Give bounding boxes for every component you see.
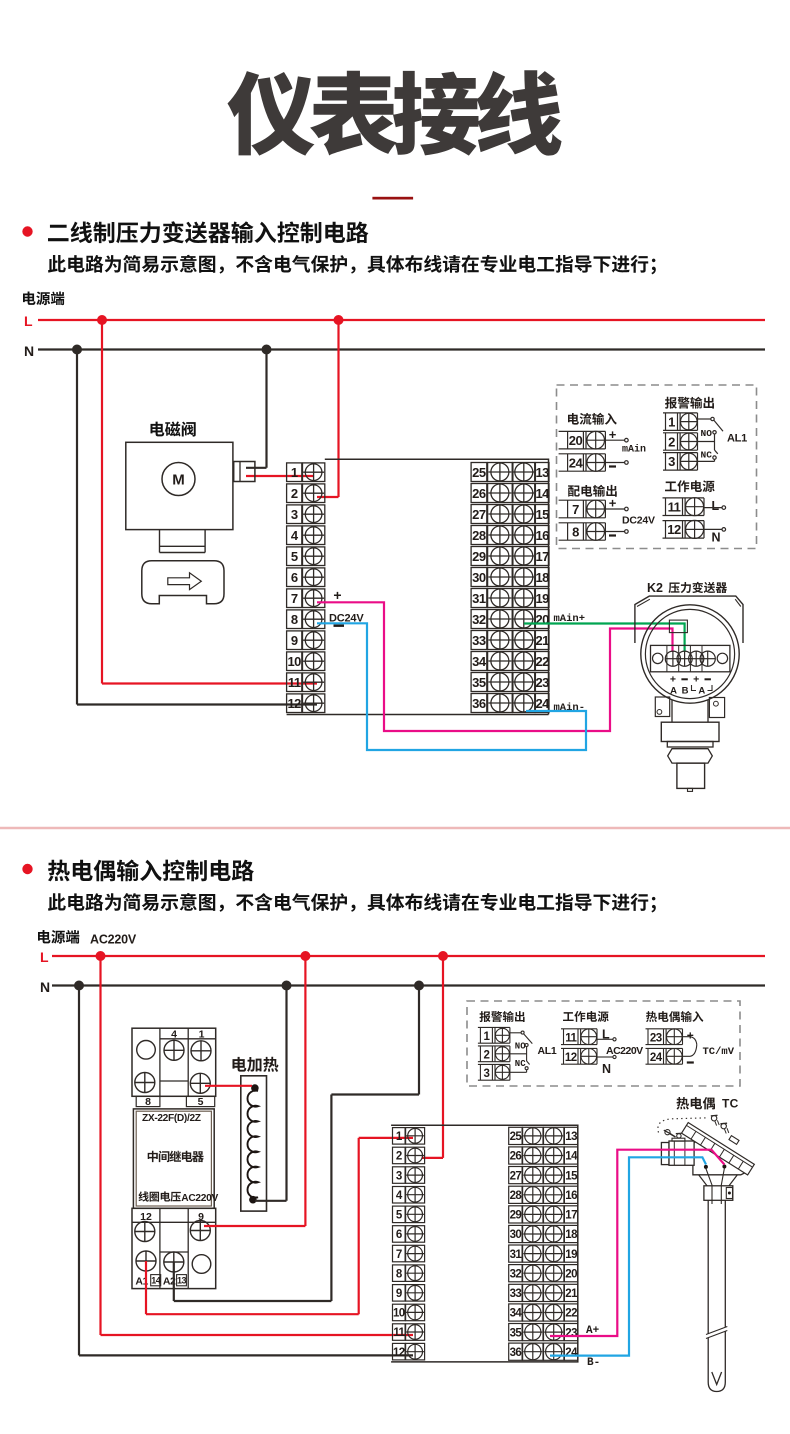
svg-text:A: A <box>670 686 677 697</box>
svg-text:L: L <box>712 499 720 513</box>
svg-text:36: 36 <box>510 1347 522 1359</box>
svg-text:15: 15 <box>535 507 549 522</box>
svg-text:3: 3 <box>668 454 675 469</box>
svg-text:23: 23 <box>535 675 549 690</box>
svg-text:10: 10 <box>287 654 301 669</box>
svg-text:12: 12 <box>393 1347 405 1359</box>
svg-text:17: 17 <box>535 549 549 564</box>
svg-text:1: 1 <box>668 414 675 429</box>
svg-text:5: 5 <box>291 549 298 564</box>
svg-text:24: 24 <box>569 455 584 470</box>
svg-text:10: 10 <box>393 1308 405 1320</box>
svg-text:3: 3 <box>396 1170 402 1182</box>
svg-text:29: 29 <box>472 549 486 564</box>
svg-text:A: A <box>698 686 705 697</box>
svg-text:B-: B- <box>587 1357 600 1369</box>
svg-text:+: + <box>609 496 617 511</box>
svg-text:AC220V: AC220V <box>90 933 137 947</box>
svg-text:21: 21 <box>565 1288 578 1300</box>
svg-text:2: 2 <box>483 1050 489 1062</box>
svg-text:35: 35 <box>472 675 486 690</box>
svg-text:29: 29 <box>510 1210 522 1222</box>
svg-text:27: 27 <box>510 1170 522 1182</box>
svg-text:19: 19 <box>535 591 549 606</box>
svg-text:17: 17 <box>565 1210 577 1222</box>
svg-text:ZX-22F(D)/2Z: ZX-22F(D)/2Z <box>142 1113 201 1124</box>
svg-text:B: B <box>682 686 689 697</box>
svg-text:23: 23 <box>650 1033 662 1045</box>
svg-text:32: 32 <box>510 1268 522 1280</box>
svg-text:26: 26 <box>510 1151 522 1163</box>
svg-text:15: 15 <box>565 1170 578 1182</box>
svg-text:N: N <box>24 343 34 359</box>
svg-text:AC220V: AC220V <box>606 1045 643 1057</box>
svg-text:25: 25 <box>510 1131 523 1143</box>
svg-text:20: 20 <box>569 433 583 448</box>
svg-text:7: 7 <box>396 1249 402 1261</box>
svg-text:AL1: AL1 <box>538 1045 557 1057</box>
svg-text:L: L <box>40 949 49 965</box>
svg-text:30: 30 <box>510 1229 522 1241</box>
svg-text:20: 20 <box>565 1268 577 1280</box>
svg-text:36: 36 <box>472 696 486 711</box>
svg-text:3: 3 <box>291 507 298 522</box>
svg-text:33: 33 <box>472 633 486 648</box>
svg-text:14: 14 <box>565 1151 578 1163</box>
svg-text:8: 8 <box>291 612 298 627</box>
svg-text:11: 11 <box>393 1327 405 1339</box>
svg-text:NO: NO <box>515 1042 526 1052</box>
svg-text:NO: NO <box>701 428 713 439</box>
svg-text:M: M <box>172 472 185 489</box>
svg-text:6: 6 <box>291 570 298 585</box>
svg-text:22: 22 <box>535 654 549 669</box>
svg-text:NC: NC <box>701 450 713 461</box>
svg-text:7: 7 <box>572 502 579 517</box>
svg-text:13: 13 <box>535 465 549 480</box>
svg-text:24: 24 <box>650 1052 663 1064</box>
svg-text:+: + <box>670 674 676 686</box>
svg-text:6: 6 <box>396 1229 402 1241</box>
svg-text:13: 13 <box>177 1276 187 1286</box>
svg-text:30: 30 <box>472 570 486 585</box>
svg-text:1: 1 <box>199 1028 205 1040</box>
svg-text:3: 3 <box>483 1068 489 1080</box>
svg-text:33: 33 <box>510 1288 522 1300</box>
svg-text:2: 2 <box>668 434 675 449</box>
svg-text:+: + <box>693 674 699 686</box>
svg-text:11: 11 <box>288 675 301 690</box>
svg-text:mAin: mAin <box>622 444 646 456</box>
svg-text:23: 23 <box>565 1327 577 1339</box>
svg-text:19: 19 <box>565 1249 577 1261</box>
svg-text:11: 11 <box>668 500 681 515</box>
svg-text:9: 9 <box>396 1288 402 1300</box>
svg-text:L: L <box>24 313 33 329</box>
svg-text:mAin-: mAin- <box>554 702 586 714</box>
svg-text:24: 24 <box>535 696 550 711</box>
svg-text:31: 31 <box>472 591 486 606</box>
svg-text:34: 34 <box>510 1308 523 1320</box>
svg-text:14: 14 <box>151 1276 161 1286</box>
svg-text:28: 28 <box>510 1190 523 1202</box>
svg-text:31: 31 <box>510 1249 523 1261</box>
svg-text:7: 7 <box>291 591 298 606</box>
svg-text:2: 2 <box>396 1151 402 1163</box>
svg-text:16: 16 <box>565 1190 577 1202</box>
svg-text:AC220V: AC220V <box>181 1193 218 1204</box>
svg-text:N: N <box>602 1062 611 1076</box>
svg-text:1: 1 <box>291 465 298 480</box>
svg-text:8: 8 <box>572 524 579 539</box>
svg-text:27: 27 <box>472 507 486 522</box>
svg-text:13: 13 <box>565 1131 577 1143</box>
svg-text:32: 32 <box>472 612 486 627</box>
svg-text:12: 12 <box>565 1052 577 1064</box>
svg-text:2: 2 <box>291 486 298 501</box>
svg-text:TC/mV: TC/mV <box>703 1046 735 1058</box>
svg-text:21: 21 <box>535 633 549 648</box>
svg-text:12: 12 <box>287 696 301 711</box>
svg-text:NC: NC <box>515 1059 526 1069</box>
svg-text:34: 34 <box>472 654 487 669</box>
svg-text:26: 26 <box>472 486 486 501</box>
svg-text:25: 25 <box>472 465 486 480</box>
svg-text:N: N <box>40 979 50 995</box>
svg-text:12: 12 <box>667 522 681 537</box>
svg-text:9: 9 <box>291 633 298 648</box>
svg-text:24: 24 <box>565 1347 578 1359</box>
svg-text:+: + <box>333 587 341 603</box>
svg-text:28: 28 <box>472 528 486 543</box>
svg-text:35: 35 <box>510 1327 523 1339</box>
svg-text:+: + <box>687 1029 694 1043</box>
svg-text:5: 5 <box>198 1096 204 1108</box>
svg-text:22: 22 <box>565 1308 577 1320</box>
svg-text:K2: K2 <box>647 581 663 595</box>
svg-text:AL1: AL1 <box>727 433 747 445</box>
svg-text:16: 16 <box>535 528 549 543</box>
svg-text:18: 18 <box>535 570 549 585</box>
svg-text:14: 14 <box>535 486 550 501</box>
svg-text:N: N <box>712 531 721 545</box>
svg-text:TC: TC <box>722 1097 739 1111</box>
svg-text:4: 4 <box>171 1028 177 1040</box>
svg-text:11: 11 <box>565 1033 577 1045</box>
svg-text:18: 18 <box>565 1229 578 1241</box>
svg-text:DC24V: DC24V <box>622 515 655 527</box>
svg-text:8: 8 <box>145 1096 151 1108</box>
